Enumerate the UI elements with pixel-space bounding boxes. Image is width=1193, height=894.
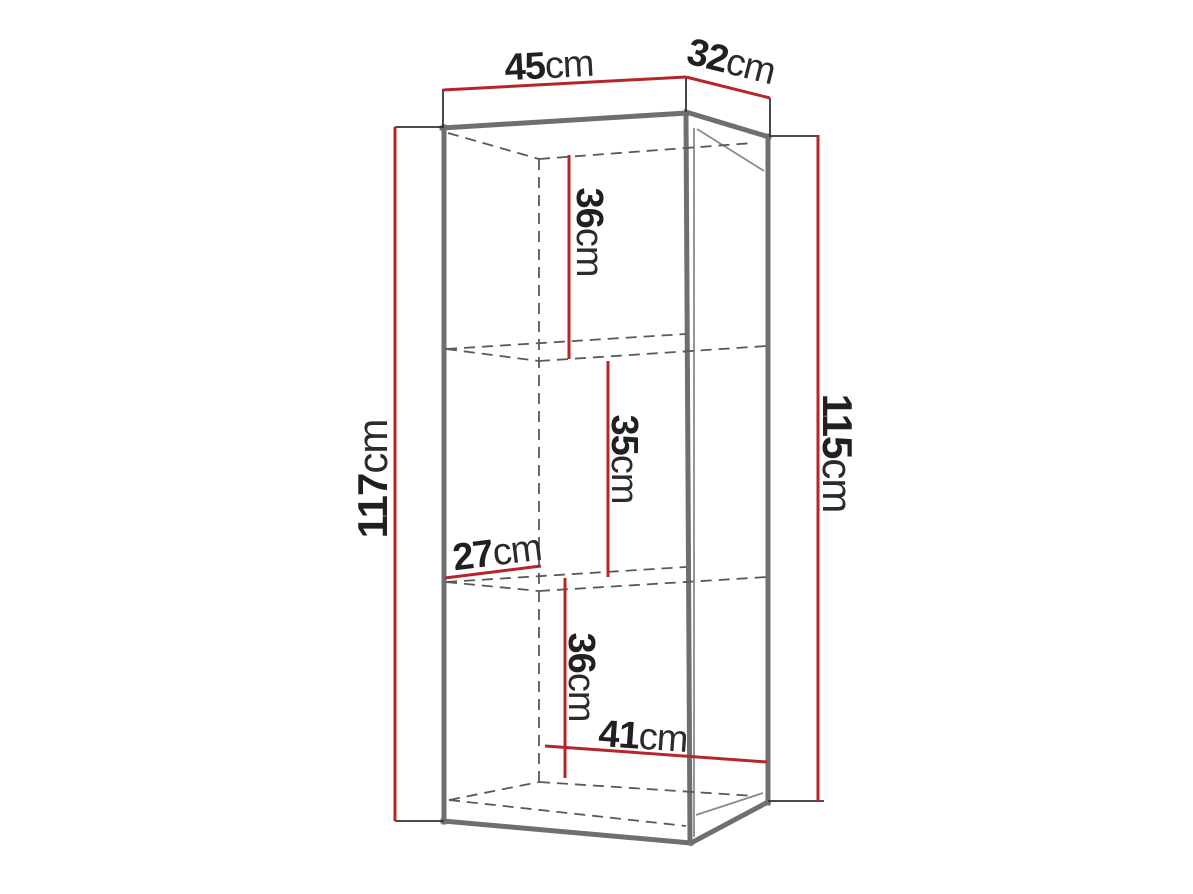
front-bottom-edge (443, 821, 691, 843)
dimension-diagram: 45cm 32cm 117cm 115cm 36cm 35cm 36cm 27c… (0, 0, 1193, 894)
label-shelf-bottom: 36cm (560, 633, 602, 722)
side-bottom-edge (691, 802, 768, 843)
label-inner-depth: 27cm (450, 527, 543, 580)
cabinet-diagram-canvas: 45cm 32cm 117cm 115cm 36cm 35cm 36cm 27c… (0, 0, 1193, 894)
bottom-depth-dashed (449, 782, 539, 800)
side-top-edge (686, 112, 769, 137)
shelf1-front-dashed (446, 334, 686, 349)
label-top-width: 45cm (503, 43, 594, 90)
label-inner-width: 41cm (597, 713, 689, 761)
shelf2-back-dashed (539, 577, 767, 591)
bottom-back-dashed (539, 782, 755, 796)
top-back-dashed (539, 143, 753, 159)
dimension-labels: 45cm 32cm 117cm 115cm 36cm 35cm 36cm 27c… (349, 31, 862, 761)
label-height-right: 115cm (815, 394, 862, 513)
front-top-edge (442, 113, 687, 128)
side-inner-top-slant (697, 129, 764, 171)
label-top-depth: 32cm (683, 31, 779, 93)
shelf2-depth-dashed (446, 582, 539, 591)
label-height-left: 117cm (349, 420, 396, 539)
shelf1-back-dashed (539, 346, 767, 361)
bottom-front-dashed (449, 800, 686, 826)
label-shelf-top: 36cm (568, 188, 610, 277)
shelf1-depth-dashed (446, 349, 539, 361)
label-shelf-middle: 35cm (603, 415, 645, 504)
panel-inner-lines (694, 128, 764, 837)
top-left-depth-dashed (448, 133, 539, 159)
